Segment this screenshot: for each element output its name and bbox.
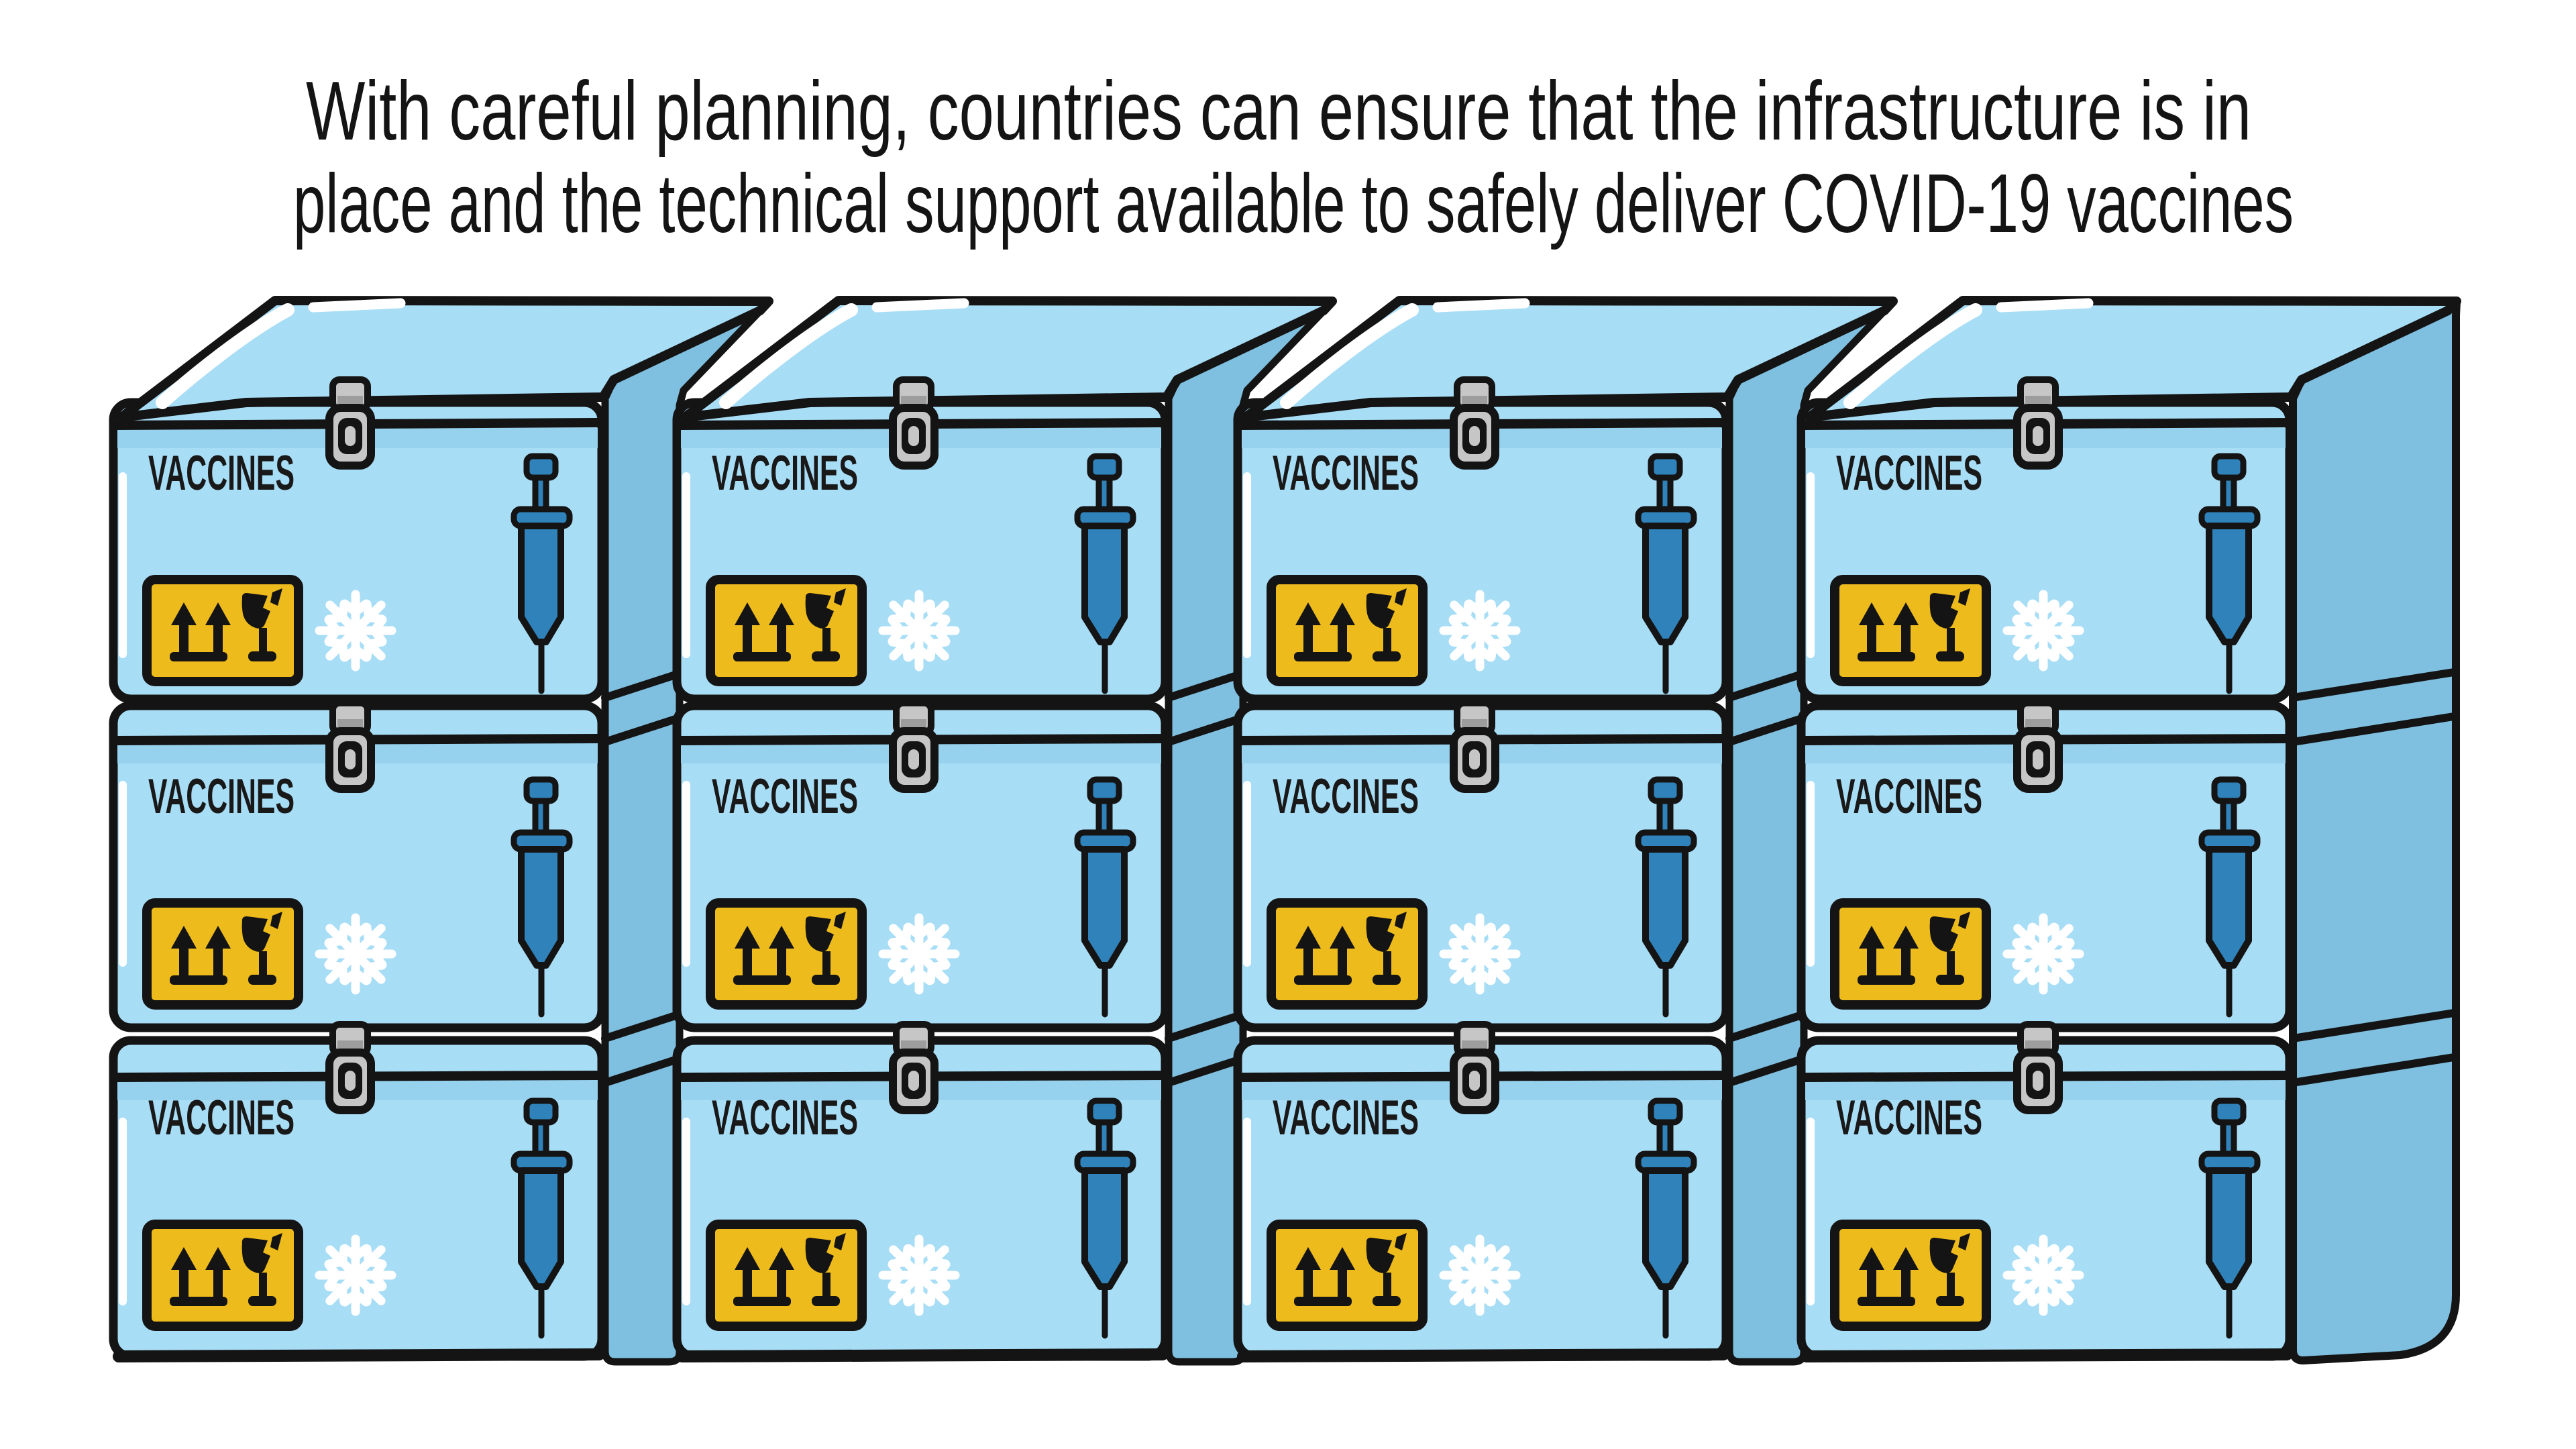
svg-text:With careful planning, countri: With careful planning, countries can ens… [306, 65, 2251, 158]
svg-text:place and the technical suppor: place and the technical support availabl… [293, 158, 2294, 250]
